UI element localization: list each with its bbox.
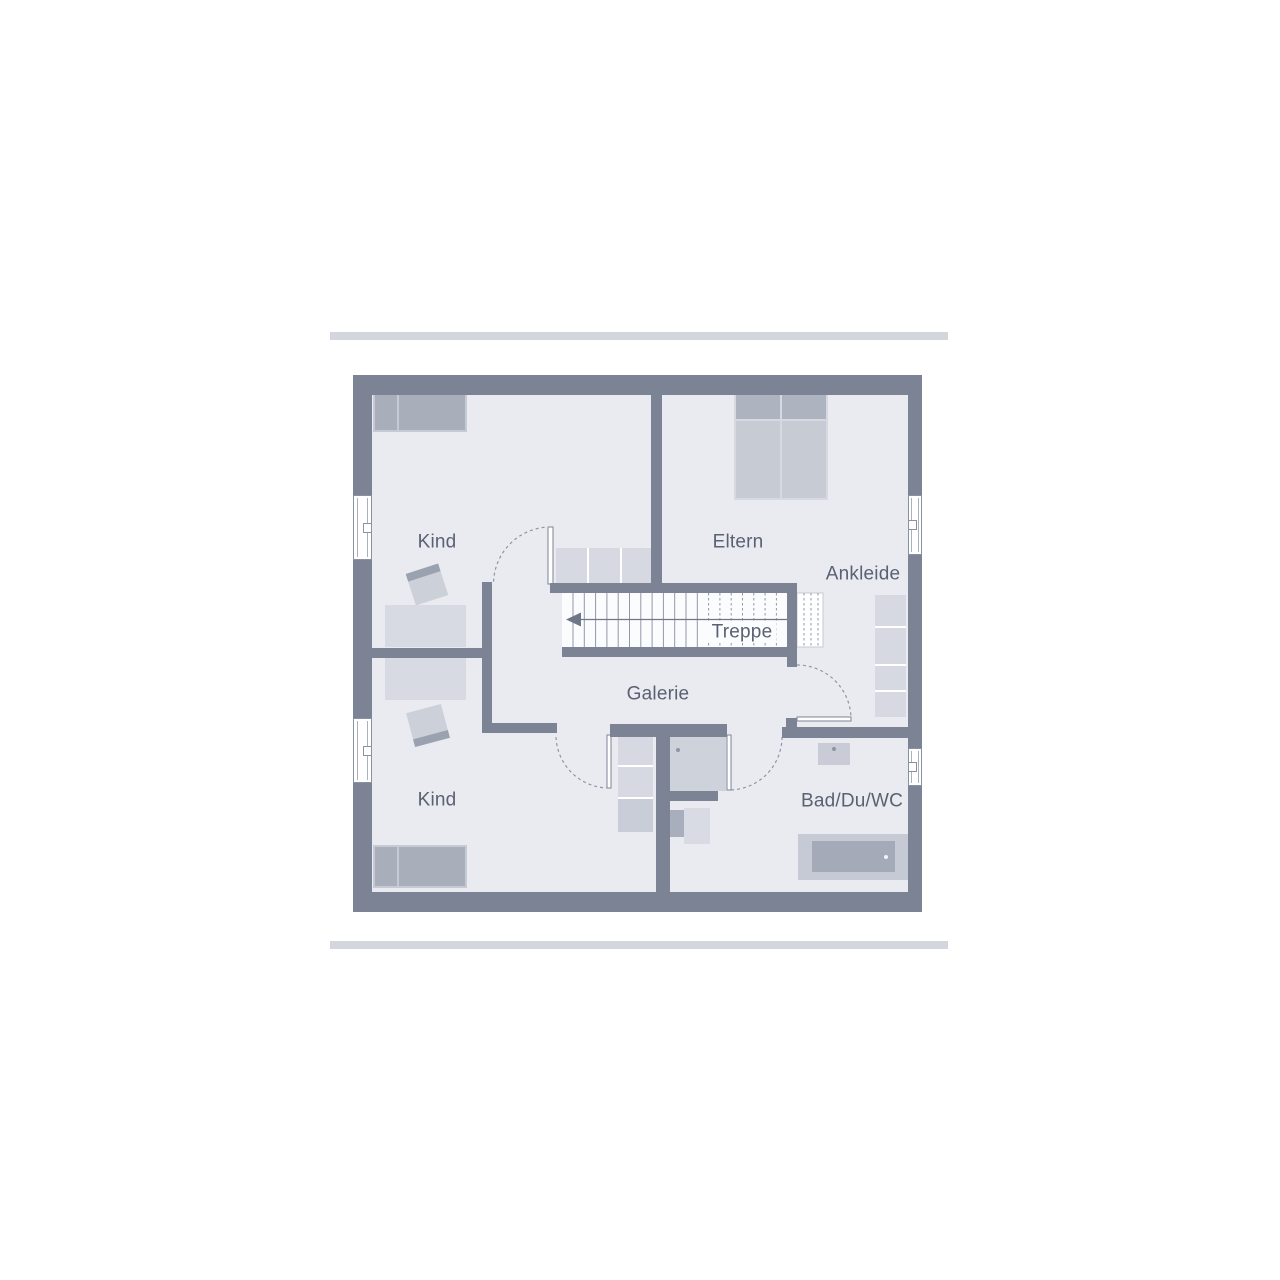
room-label-treppe: Treppe bbox=[708, 622, 777, 643]
toilet-bowl bbox=[684, 808, 710, 844]
toilet-tank bbox=[668, 810, 684, 837]
wardrobe-kind-bottom bbox=[618, 736, 653, 832]
deco-bar-top bbox=[330, 332, 948, 340]
sideboard-stairwell bbox=[556, 548, 653, 583]
desk-kind-bottom bbox=[385, 658, 466, 700]
exterior-wall-right-middle bbox=[908, 555, 922, 748]
wall-shower-wc-partition bbox=[656, 791, 718, 801]
bed-mattress bbox=[782, 421, 826, 498]
room-label-kind-bottom: Kind bbox=[418, 791, 457, 810]
wall-galerie-kind-jog bbox=[492, 723, 557, 733]
wall-kind-eltern bbox=[651, 395, 662, 592]
chair-kind-bottom bbox=[406, 704, 450, 747]
bed-kind-bottom bbox=[373, 845, 467, 888]
door-arc-ankleide bbox=[797, 665, 851, 719]
door-arc-kind-top bbox=[494, 527, 551, 584]
exterior-wall-left-middle bbox=[353, 560, 372, 718]
window-right-lower bbox=[908, 748, 922, 786]
room-label-ankleide: Ankleide bbox=[826, 565, 900, 584]
window-right-upper bbox=[908, 495, 922, 555]
wall-stairwell-top bbox=[550, 583, 797, 593]
bed-eltern bbox=[734, 393, 828, 500]
exterior-wall-left-upper bbox=[353, 375, 372, 495]
bed-kind-top bbox=[373, 390, 467, 432]
stair-extension bbox=[797, 593, 823, 647]
window-left-upper bbox=[353, 495, 372, 560]
room-label-kind-top: Kind bbox=[418, 533, 457, 552]
chair-kind-top bbox=[406, 564, 449, 606]
bed-pillow bbox=[736, 395, 780, 419]
exterior-wall-right-lower bbox=[908, 786, 922, 912]
door-leaf-kind-top bbox=[548, 527, 553, 584]
room-label-galerie: Galerie bbox=[627, 685, 690, 704]
bed-mattress bbox=[399, 847, 465, 886]
bed-pillow bbox=[782, 395, 826, 419]
stairs bbox=[562, 593, 823, 647]
stair-direction-arrow bbox=[566, 613, 581, 627]
desk-kind-top bbox=[385, 605, 466, 647]
bathtub bbox=[798, 834, 908, 880]
window-left-lower bbox=[353, 718, 372, 783]
page: { "title": "Obergeschoss Grundriss", "fl… bbox=[0, 0, 1280, 1280]
deco-bar-bottom bbox=[330, 941, 948, 949]
bed-mattress bbox=[736, 421, 780, 498]
door-leaf-kind-bottom bbox=[607, 735, 611, 788]
shower bbox=[670, 737, 726, 791]
exterior-wall-bottom bbox=[353, 892, 922, 912]
bed-mattress bbox=[399, 392, 465, 430]
door-arc-kind-bottom bbox=[556, 737, 609, 788]
exterior-wall-top bbox=[353, 375, 922, 395]
floor-plan: Kind Eltern Ankleide Treppe Galerie Kind… bbox=[353, 375, 922, 912]
wall-door-hinge-block bbox=[786, 718, 797, 727]
exterior-wall-left-lower bbox=[353, 783, 372, 912]
door-arc-bad bbox=[729, 737, 782, 790]
bathtub-basin bbox=[812, 841, 895, 872]
wall-kind-kind bbox=[372, 648, 492, 658]
wall-kind-bad bbox=[656, 727, 670, 892]
wardrobe-ankleide bbox=[875, 595, 906, 717]
wall-bad-top bbox=[782, 727, 908, 738]
wall-stairwell-bottom bbox=[562, 647, 797, 657]
sink bbox=[818, 743, 850, 765]
room-label-eltern: Eltern bbox=[713, 533, 764, 552]
bed-pillow bbox=[375, 847, 397, 886]
door-leaf-ankleide bbox=[797, 717, 851, 721]
door-leaf-bad bbox=[727, 735, 731, 790]
exterior-wall-right-upper bbox=[908, 375, 922, 495]
bed-pillow bbox=[375, 392, 397, 430]
room-label-bad: Bad/Du/WC bbox=[801, 792, 903, 811]
